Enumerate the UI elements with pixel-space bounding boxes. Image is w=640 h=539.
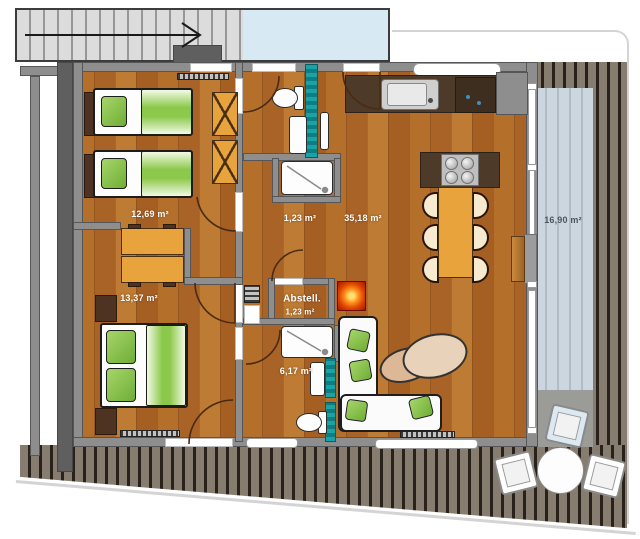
- living-radiator: [400, 431, 455, 438]
- wall-dresser-right: [184, 228, 191, 284]
- bottom-window-2: [375, 439, 478, 449]
- dresser-handle-3: [128, 282, 141, 287]
- dresser-handle-2: [163, 224, 176, 229]
- stove-burner-2: [461, 157, 474, 170]
- kitchen-sink-drain: [428, 98, 433, 103]
- bath-bottom-door-gap: [235, 327, 243, 360]
- window-handle-1: [527, 83, 537, 90]
- label-bedroom-top-area: 12,69 m²: [131, 209, 169, 219]
- label-bathroom-bottom-area: 6,17 m²: [280, 366, 312, 376]
- label-bathroom-top-area: 1,23 m²: [284, 213, 316, 223]
- right-window-bottom: [528, 290, 536, 428]
- hall-radiator: [244, 285, 260, 303]
- stair-landing: [243, 10, 388, 60]
- sink-top: [289, 116, 307, 154]
- hall-window: [252, 63, 296, 72]
- nightstand-1: [95, 295, 117, 322]
- wall-bedroom-divider-left: [73, 222, 121, 230]
- double-bed-pillow-1: [106, 330, 136, 364]
- terrace-chair-right-seat: [589, 461, 618, 490]
- single-bed-2-blanket: [141, 151, 192, 197]
- double-bed-pillow-2: [106, 368, 136, 402]
- right-window-top: [528, 88, 536, 168]
- label-living-area: 35,18 m²: [344, 213, 382, 223]
- appliance-knob-1: [466, 95, 470, 99]
- balcony-door-wood-leaf: [511, 236, 525, 282]
- toilet-bottom-bowl: [296, 413, 322, 432]
- balcony-door-panel-track: [524, 234, 537, 284]
- floor-plan: 12,69 m² 13,37 m² 1,23 m² 35,18 m² Abste…: [0, 0, 640, 539]
- entry-door-gap: [343, 63, 380, 72]
- kitchen-sink-basin: [387, 83, 427, 106]
- bedroom-top-door-gap: [235, 192, 243, 232]
- bath-bottom-tile-1: [325, 358, 336, 398]
- wardrobe-2: [212, 140, 238, 184]
- balcony-floor: [535, 88, 593, 390]
- single-bed-1-pillow: [101, 96, 127, 127]
- appliance-knob-2: [477, 101, 481, 105]
- terrace-round-table: [537, 447, 584, 494]
- wardrobe-1: [212, 92, 238, 136]
- dresser-handle-1: [128, 224, 141, 229]
- fireplace-stove: [337, 281, 366, 311]
- sofa-pillow-1: [346, 328, 371, 353]
- shower-top-tray: [281, 161, 333, 195]
- window-handle-4: [527, 427, 537, 434]
- label-bedroom-bottom-area: 13,37 m²: [120, 293, 158, 303]
- terrace-chair-left-seat: [501, 458, 530, 487]
- terrace-chair-top-seat: [553, 412, 582, 441]
- window-handle-2: [527, 164, 537, 171]
- sofa-pillow-2: [348, 358, 372, 382]
- bath-top-shelf: [320, 112, 329, 150]
- window-handle-3: [527, 281, 537, 288]
- left-outer-wall-vertical: [30, 76, 40, 456]
- stove-burner-1: [445, 157, 458, 170]
- single-bed-1-blanket: [141, 89, 192, 135]
- wall-dresser-bottom: [184, 277, 243, 285]
- bedroom-bottom-door-gap: [235, 283, 243, 323]
- shower-bottom-tray: [281, 326, 333, 358]
- bedroom-top-radiator: [177, 73, 229, 80]
- label-storage-area: 1,23 m²: [286, 308, 315, 317]
- stove-burner-4: [461, 171, 474, 184]
- shower-top-enclosure-bottom: [272, 196, 341, 203]
- bedroom-top-window: [190, 63, 232, 72]
- bedroom-bottom-radiator: [120, 430, 180, 437]
- single-bed-2-pillow: [101, 158, 127, 189]
- wall-left: [73, 62, 83, 447]
- kitchen-side-wall: [496, 72, 528, 115]
- dining-table: [438, 187, 473, 278]
- bedroom-bottom-terrace-door-gap: [165, 438, 233, 447]
- label-storage-name: Abstell.: [283, 294, 321, 305]
- stove-burner-3: [445, 171, 458, 184]
- sofa-pillow-3: [345, 399, 369, 423]
- wall-bath-top-bottom: [243, 153, 341, 161]
- dresser-2: [121, 256, 184, 283]
- left-dark-band: [57, 62, 73, 472]
- label-balcony-area: 16,90 m²: [544, 215, 582, 225]
- bottom-window-1: [246, 438, 298, 448]
- nightstand-2: [95, 408, 117, 435]
- storage-door-gap: [274, 278, 303, 285]
- dresser-handle-4: [163, 282, 176, 287]
- toilet-top-bowl: [272, 88, 298, 108]
- sink-bottom: [310, 362, 325, 396]
- dresser-1: [121, 228, 184, 255]
- double-bed-blanket: [146, 325, 186, 406]
- kitchen-appliance: [455, 77, 496, 113]
- hall-bath-opening: [244, 305, 260, 324]
